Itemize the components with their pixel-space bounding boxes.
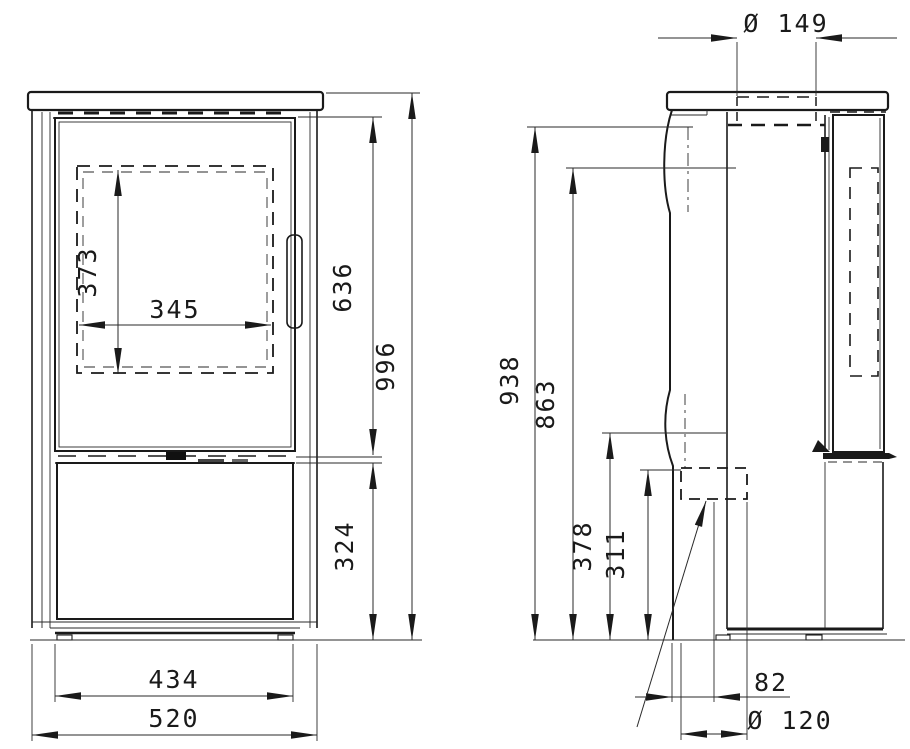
rear-flue-outlet-hidden	[681, 468, 747, 499]
dimension-base-section-height: 324	[296, 463, 382, 640]
rear-body-wall	[812, 115, 830, 452]
dim-label-overall-height: 996	[371, 340, 400, 391]
dimension-glass-width: 345	[79, 295, 271, 325]
dimension-rear-outlet-offset: 82	[635, 502, 790, 702]
front-view: 373 345 636 996 324 434	[28, 92, 422, 741]
dim-label-upper-section-height: 636	[328, 261, 357, 312]
top-plate	[28, 92, 323, 110]
dim-label-rear-outlet-offset: 82	[754, 668, 788, 697]
base-panel	[57, 463, 293, 619]
dim-label-inner-width: 434	[148, 665, 199, 694]
side-panels	[32, 110, 317, 628]
pedestal-base-side	[716, 462, 887, 640]
dim-label-glass-height: 373	[73, 246, 102, 297]
dim-label-rear-outlet-diameter: Ø 120	[747, 706, 832, 735]
dim-label-height-311: 311	[601, 528, 630, 579]
dimension-inner-width: 434	[55, 644, 293, 702]
flue-collar-hidden	[728, 97, 825, 126]
dim-label-height-938: 938	[495, 354, 524, 405]
curved-front-profile	[664, 110, 727, 640]
dimension-height-378: 378	[568, 433, 726, 640]
dimension-upper-section-height: 636	[296, 117, 382, 457]
side-view: Ø 149 938 863 378 311 82	[495, 9, 905, 740]
rear-panel-flange	[823, 453, 897, 462]
dimension-height-311: 311	[601, 470, 681, 640]
dimension-height-863: 863	[531, 168, 736, 640]
dim-label-height-863: 863	[531, 378, 560, 429]
dimension-glass-height: 373	[73, 170, 118, 374]
dim-label-base-section-height: 324	[330, 520, 359, 571]
ash-lip	[55, 451, 295, 463]
rear-convection-panel	[830, 112, 886, 452]
plinth-and-feet	[32, 622, 317, 640]
dim-label-flue-collar-diameter: Ø 149	[743, 9, 828, 38]
dimension-flue-collar-diameter: Ø 149	[658, 9, 897, 96]
rear-outlet-leader-line	[637, 501, 706, 727]
door-glass-outline	[77, 166, 273, 373]
dim-label-overall-width: 520	[148, 704, 199, 733]
dimension-rear-outlet-diameter: Ø 120	[681, 502, 833, 740]
dim-label-glass-width: 345	[149, 295, 200, 324]
stove-dimension-drawing: 373 345 636 996 324 434	[0, 0, 910, 749]
dim-label-height-378: 378	[568, 520, 597, 571]
technical-drawing-page: 373 345 636 996 324 434	[0, 0, 910, 749]
